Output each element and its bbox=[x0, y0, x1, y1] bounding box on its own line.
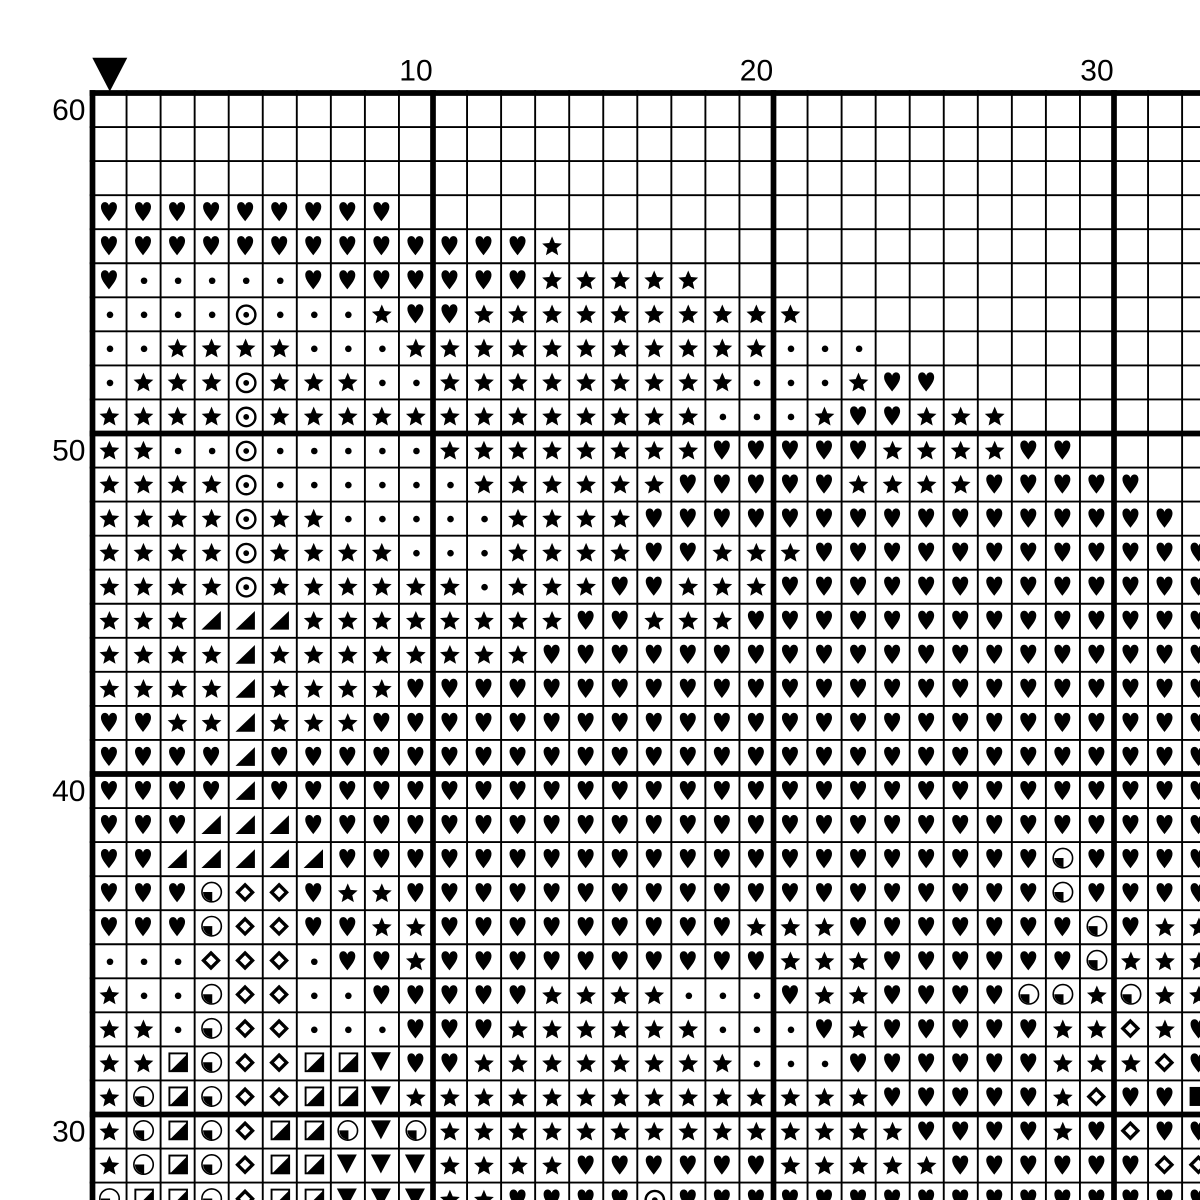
svg-text:30: 30 bbox=[1080, 55, 1113, 88]
svg-text:10: 10 bbox=[399, 55, 432, 88]
svg-text:20: 20 bbox=[740, 55, 773, 88]
svg-text:60: 60 bbox=[52, 94, 85, 127]
svg-text:40: 40 bbox=[52, 775, 85, 808]
svg-text:30: 30 bbox=[52, 1115, 85, 1148]
svg-text:50: 50 bbox=[52, 434, 85, 467]
